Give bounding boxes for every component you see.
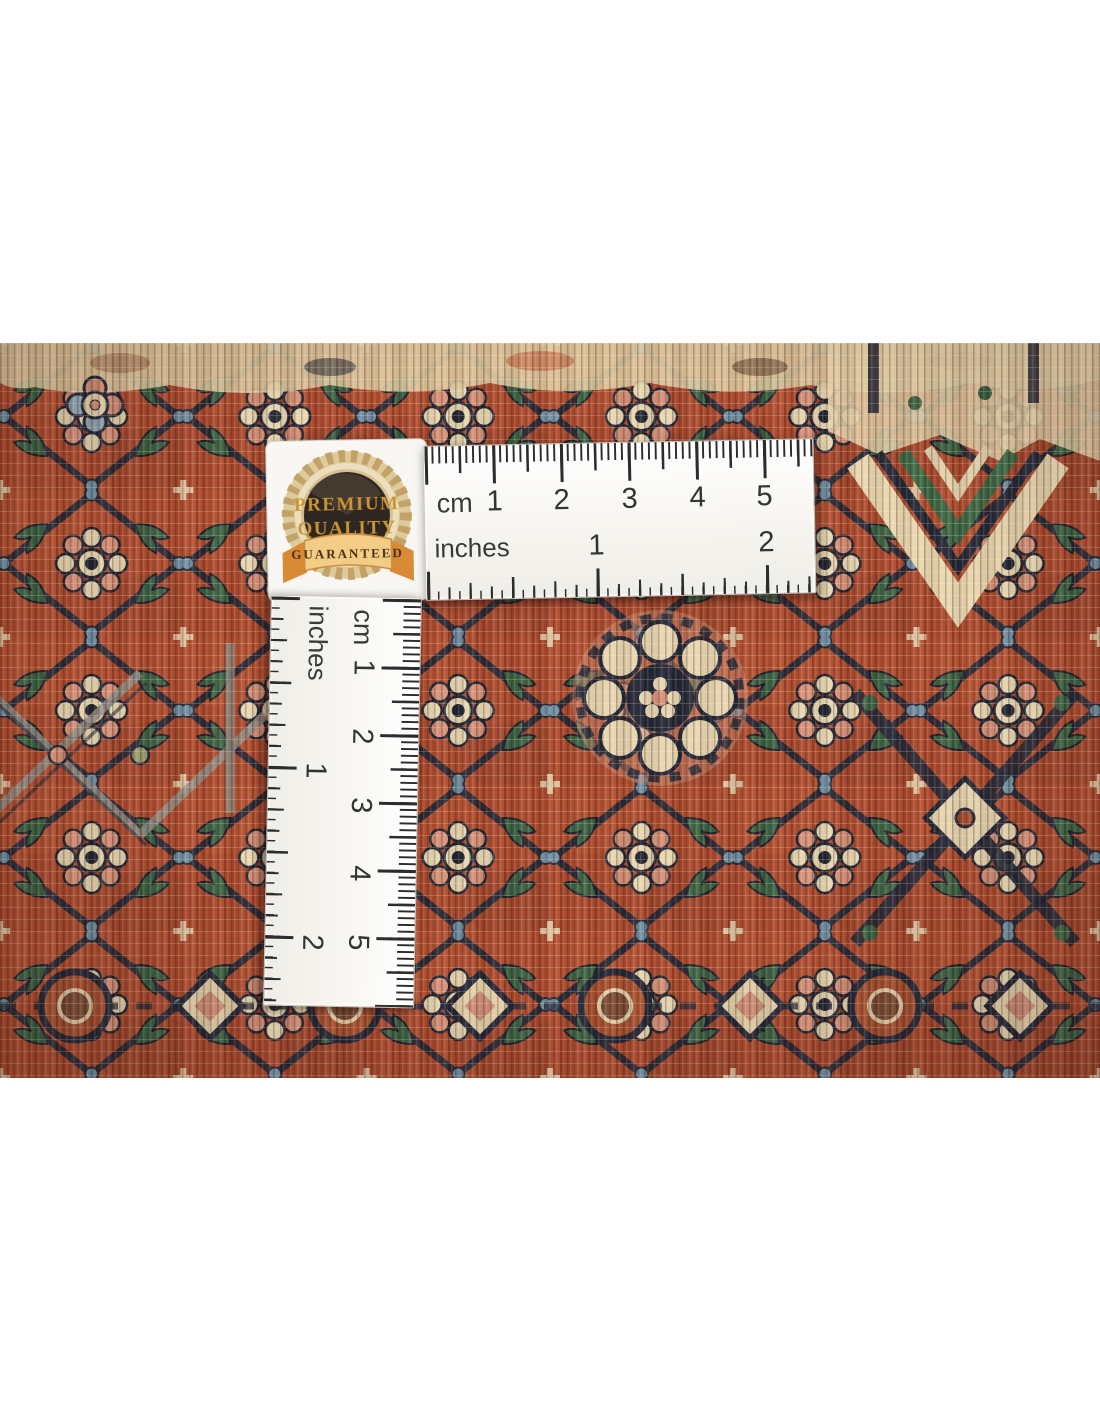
inch-number: 2 [295, 927, 329, 958]
inch-number: 1 [581, 529, 612, 563]
inches-unit-label: inches [434, 532, 510, 564]
horizontal-ruler: cm 1 2 3 4 5 inches 1 2 [423, 438, 817, 600]
badge-banner-text: GUARANTEED [291, 545, 404, 562]
premium-quality-badge: PREMIUM QUALITY GUARANTEED [265, 438, 431, 604]
cm-number: 4 [682, 481, 713, 515]
inches-unit-label: inches [301, 605, 333, 681]
vertical-ruler: cm 1 2 3 4 5 inches 1 2 [263, 595, 420, 1007]
cm-number: 3 [614, 483, 645, 517]
inch-tick-scale [426, 562, 816, 599]
badge-medallion-icon: PREMIUM QUALITY GUARANTEED [265, 438, 431, 604]
cm-tick-scale [373, 598, 421, 1008]
cm-number: 2 [546, 484, 577, 518]
cm-number: 5 [341, 927, 375, 958]
badge-title-line1: PREMIUM [294, 493, 400, 516]
cm-number: 1 [479, 485, 510, 519]
cm-unit-label: cm [347, 609, 379, 646]
product-photo-page: PREMIUM QUALITY GUARANTEED cm 1 2 3 4 5 … [0, 0, 1100, 1422]
cm-number: 2 [345, 721, 379, 752]
cm-number: 5 [749, 480, 780, 514]
inch-number: 1 [298, 755, 332, 786]
cm-unit-label: cm [436, 488, 473, 520]
vertical-ruler-face: cm 1 2 3 4 5 inches 1 2 [263, 595, 422, 1009]
cm-number: 4 [342, 858, 376, 889]
rug-photo: PREMIUM QUALITY GUARANTEED cm 1 2 3 4 5 … [0, 343, 1100, 1078]
cm-number: 1 [346, 652, 380, 683]
inch-number: 2 [751, 526, 782, 560]
cm-number: 3 [344, 790, 378, 821]
